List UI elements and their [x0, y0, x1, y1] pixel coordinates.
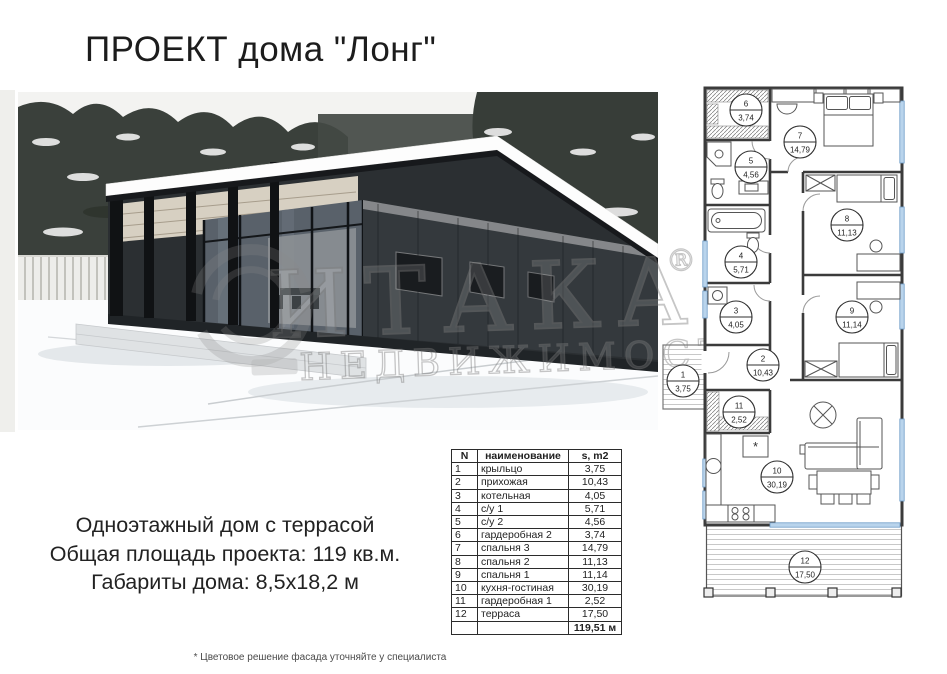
dining-table — [817, 471, 871, 494]
page-edge-strip — [0, 90, 15, 432]
table-total-row: 119,51 м — [452, 621, 622, 634]
svg-text:1: 1 — [681, 371, 686, 380]
desk — [857, 282, 900, 299]
window — [470, 262, 504, 298]
desk — [857, 254, 900, 271]
svg-text:7: 7 — [798, 132, 803, 141]
spec-line-dimensions: Габариты дома: 8,5х18,2 м — [15, 568, 435, 597]
svg-text:2,52: 2,52 — [731, 416, 747, 425]
chair — [870, 240, 882, 252]
svg-text:10,43: 10,43 — [753, 369, 774, 378]
spec-line-type: Одноэтажный дом с террасой — [15, 511, 435, 540]
entry-door-gap — [702, 351, 709, 373]
room-label: 112,52 — [723, 396, 755, 428]
room-label: 811,13 — [831, 209, 863, 241]
page-title: ПРОЕКТ дома "Лонг" — [85, 30, 436, 70]
table-row: 3котельная4,05 — [452, 489, 622, 502]
svg-text:4: 4 — [739, 252, 744, 261]
svg-text:3,74: 3,74 — [738, 114, 754, 123]
bed — [837, 175, 897, 202]
double-bed — [824, 94, 873, 146]
room-label: 54,56 — [735, 151, 767, 183]
room-label: 210,43 — [747, 349, 779, 381]
svg-text:11: 11 — [735, 402, 744, 411]
svg-text:3: 3 — [734, 307, 739, 316]
svg-text:9: 9 — [850, 307, 855, 316]
spec-line-area: Общая площадь проекта: 119 кв.м. — [15, 540, 435, 569]
window — [528, 272, 554, 302]
svg-text:4,05: 4,05 — [728, 321, 744, 330]
col-header-area: s, m2 — [569, 450, 622, 463]
stove — [728, 505, 754, 522]
svg-text:5,71: 5,71 — [733, 266, 749, 275]
svg-text:10: 10 — [773, 467, 782, 476]
table-row: 12терраса17,50 — [452, 608, 622, 621]
toilet — [712, 184, 723, 199]
table-row: 7спальня 314,79 — [452, 542, 622, 555]
svg-text:2: 2 — [761, 355, 766, 364]
chair — [870, 301, 882, 313]
svg-text:*: * — [753, 439, 758, 454]
svg-text:17,50: 17,50 — [795, 571, 816, 580]
room-label: 63,74 — [730, 94, 762, 126]
table-row: 5с/у 24,56 — [452, 516, 622, 529]
floor-plan: * 13,75210, — [660, 85, 947, 643]
svg-text:8: 8 — [845, 215, 850, 224]
table-row: 10кухня-гостиная30,19 — [452, 582, 622, 595]
room-label: 45,71 — [725, 246, 757, 278]
rooms-table-body: 1крыльцо3,752прихожая10,433котельная4,05… — [452, 463, 622, 621]
window — [396, 252, 442, 296]
bed — [839, 343, 898, 377]
col-header-name: наименование — [478, 450, 569, 463]
svg-text:5: 5 — [749, 157, 754, 166]
house-photo — [18, 92, 658, 430]
rooms-table: N наименование s, m2 1крыльцо3,752прихож… — [451, 449, 622, 635]
svg-text:11,14: 11,14 — [842, 321, 862, 330]
washer — [708, 287, 727, 304]
svg-text:6: 6 — [744, 100, 749, 109]
table-row: 2прихожая10,43 — [452, 476, 622, 489]
table-row: 8спальня 211,13 — [452, 555, 622, 568]
glass-wall — [204, 200, 363, 336]
room-label: 714,79 — [784, 126, 816, 158]
room-label: 13,75 — [667, 365, 699, 397]
room-label: 34,05 — [720, 301, 752, 333]
table-row: 1крыльцо3,75 — [452, 463, 622, 476]
svg-text:30,19: 30,19 — [767, 481, 788, 490]
room-label: 911,14 — [836, 301, 868, 333]
total-area: 119,51 м — [569, 621, 622, 634]
table-row: 6гардеробная 23,74 — [452, 529, 622, 542]
table-row: 9спальня 111,14 — [452, 568, 622, 581]
svg-text:11,13: 11,13 — [837, 229, 857, 238]
svg-text:4,56: 4,56 — [743, 171, 759, 180]
footer-note: * Цветовое решение фасада уточняйте у сп… — [150, 652, 490, 663]
svg-text:12: 12 — [801, 557, 810, 566]
table-header-row: N наименование s, m2 — [452, 450, 622, 463]
svg-text:14,79: 14,79 — [790, 146, 811, 155]
project-specs: Одноэтажный дом с террасой Общая площадь… — [15, 511, 435, 597]
table-row: 11гардеробная 12,52 — [452, 595, 622, 608]
svg-text:3,75: 3,75 — [675, 385, 691, 394]
kitchen-counter — [706, 434, 721, 505]
glazed-wall — [770, 523, 900, 527]
interior-dining-table — [280, 288, 320, 295]
col-header-number: N — [452, 450, 478, 463]
house-render-illustration — [18, 92, 658, 430]
room-label: 1030,19 — [761, 461, 793, 493]
room-label: 1217,50 — [789, 551, 821, 583]
table-row: 4с/у 15,71 — [452, 502, 622, 515]
